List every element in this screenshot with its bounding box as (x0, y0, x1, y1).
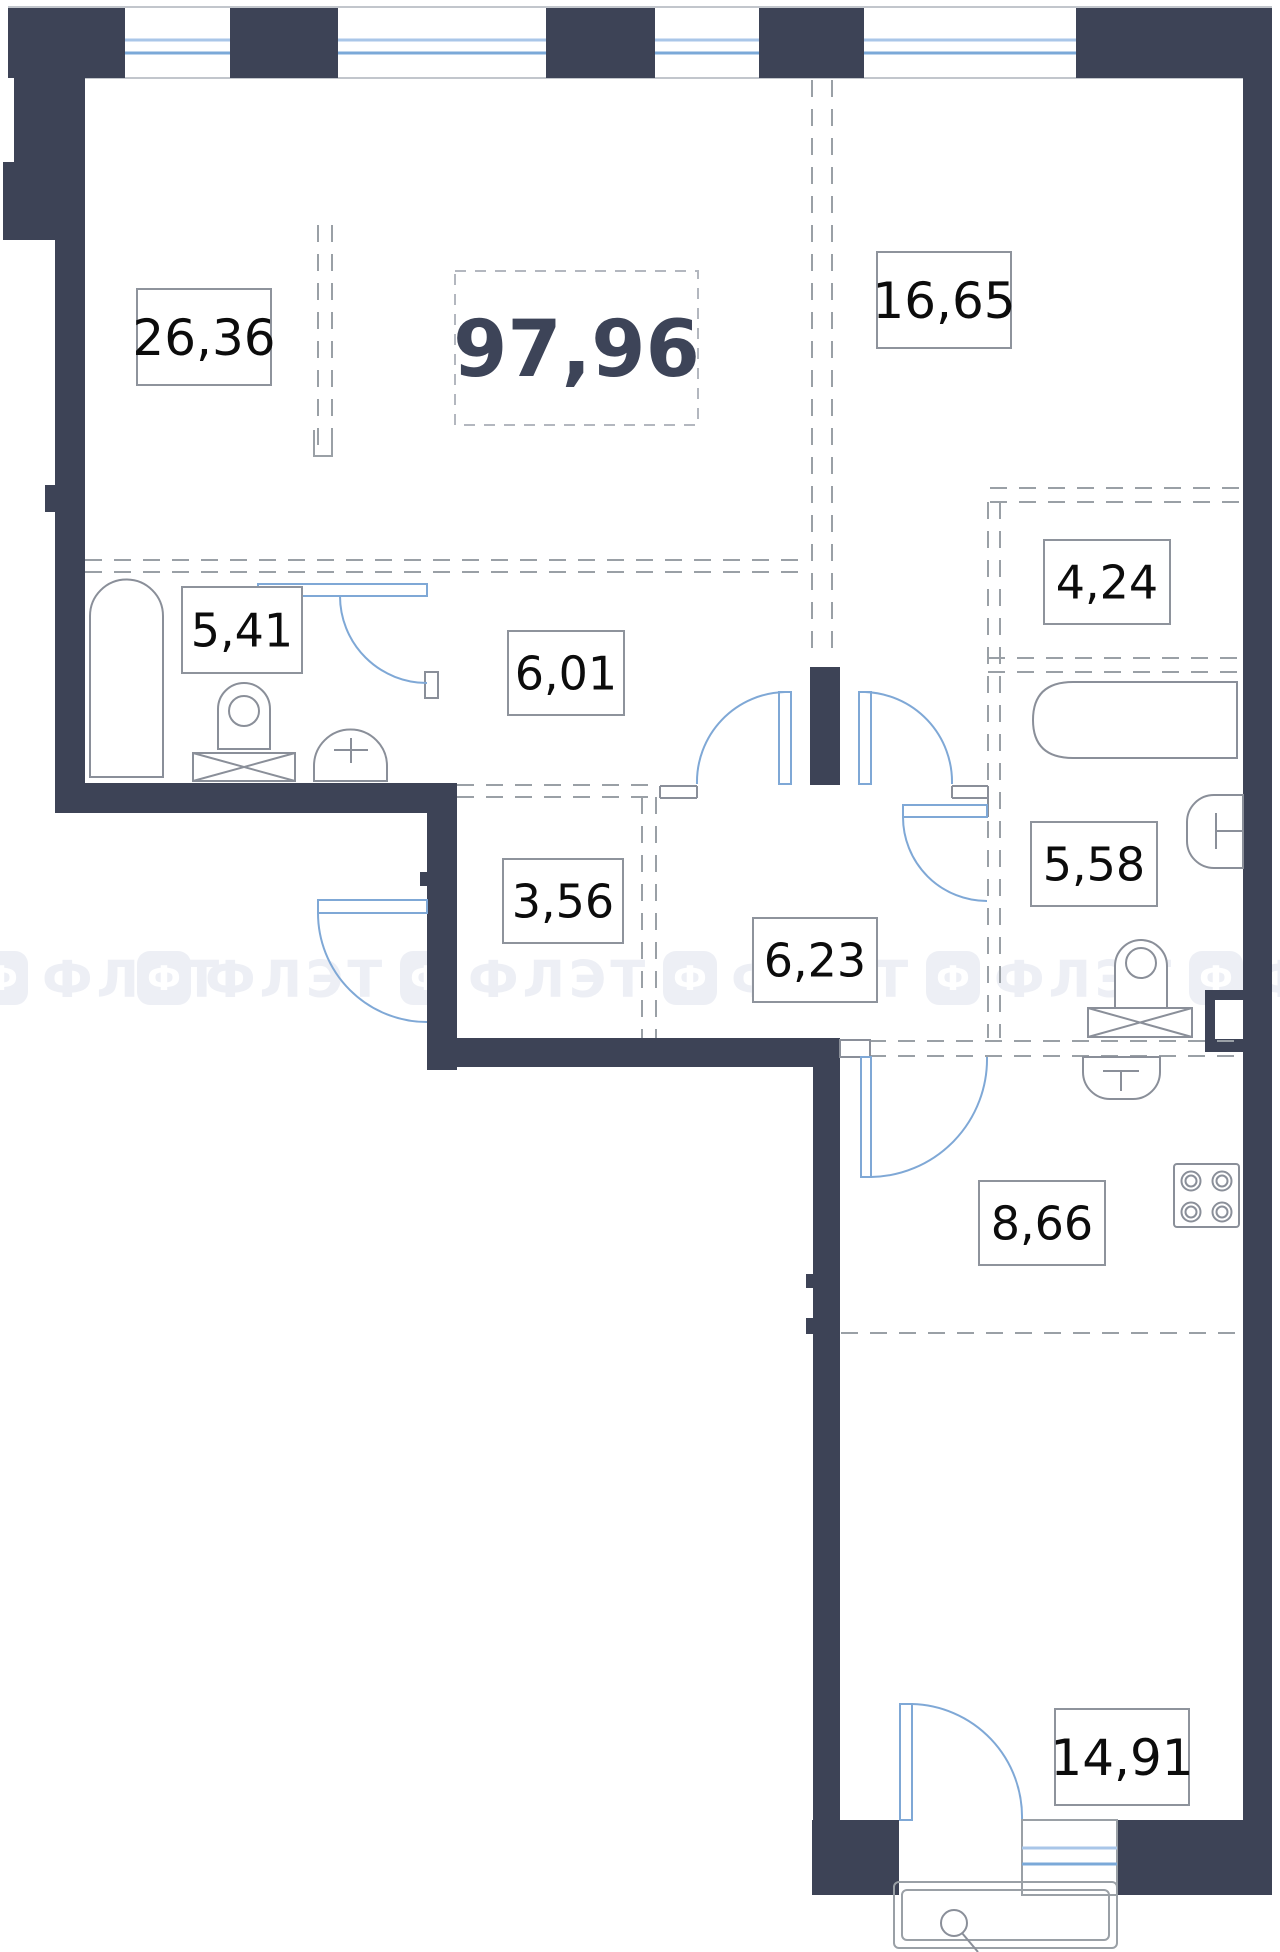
room-area-value: 4,24 (1056, 556, 1158, 610)
room-area-loggia: 4,24 (1044, 540, 1170, 624)
brand-watermark-text: ФЛЭТ (205, 951, 386, 1010)
room-area-value: 6,23 (764, 934, 866, 988)
bathtub-icon (1033, 682, 1237, 758)
brand-watermark-text: ФЛЭТ (468, 951, 649, 1010)
brand-watermark: ФФЛЭТ (137, 951, 386, 1010)
room-area-living-room: 26,36 (132, 289, 275, 385)
floor-plan-page: ФФЛЭТФФЛЭТФФЛЭТФФЛЭТФФЛЭТФФЛЭТ (0, 0, 1280, 1952)
room-area-value: 8,66 (991, 1197, 1093, 1251)
room-area-value: 3,56 (512, 875, 614, 929)
room-area-hallway: 6,01 (508, 631, 624, 715)
kitchen-sink-icon (1083, 1057, 1160, 1099)
toilet-icon (193, 683, 295, 781)
room-area-corridor: 3,56 (503, 859, 623, 943)
watermark-row: ФФЛЭТФФЛЭТФФЛЭТФФЛЭТФФЛЭТФФЛЭТ (0, 951, 1280, 1010)
total-area-label: 97,96 (453, 271, 700, 425)
room-area-room-2: 14,91 (1050, 1709, 1193, 1805)
room-area-bathroom: 5,41 (182, 587, 302, 673)
washbasin-icon (314, 730, 387, 782)
brand-logo-letter: Ф (147, 959, 181, 999)
balcony-door-icon (900, 1704, 1022, 1820)
brand-logo-letter: Ф (673, 959, 707, 999)
door-swing-icon (859, 692, 952, 784)
room-area-kitchen: 8,66 (979, 1181, 1105, 1265)
stove-icon (1174, 1164, 1239, 1227)
room-area-value: 26,36 (132, 309, 275, 367)
total-area-value: 97,96 (453, 305, 700, 395)
wall-niche (1215, 1000, 1243, 1039)
room-area-value: 14,91 (1050, 1729, 1193, 1787)
room-area-bedroom: 16,65 (872, 252, 1015, 348)
room-area-value: 5,41 (191, 604, 293, 658)
room-area-hall: 6,23 (753, 918, 877, 1002)
wall-sink-icon (1187, 795, 1243, 868)
door-swing-icon (697, 692, 791, 784)
brand-watermark-text: ФЛЭТ (42, 951, 223, 1010)
brand-logo-letter: Ф (936, 959, 970, 999)
shower-cabin-icon (90, 580, 163, 778)
room-area-labels: 26,3616,654,245,416,015,583,566,238,6614… (132, 252, 1193, 1805)
floor-plan: ФФЛЭТФФЛЭТФФЛЭТФФЛЭТФФЛЭТФФЛЭТ (0, 0, 1280, 1952)
door-swing-icon (903, 805, 987, 901)
balcony-window-icon (1022, 1820, 1117, 1895)
room-area-value: 16,65 (872, 272, 1015, 330)
brand-logo-letter: Ф (0, 959, 18, 999)
room-area-value: 5,58 (1043, 838, 1145, 892)
room-area-value: 6,01 (515, 647, 617, 701)
door-handle-icon (941, 1910, 967, 1936)
room-area-bathroom-2: 5,58 (1031, 822, 1157, 906)
door-swing-icon (861, 1057, 987, 1177)
